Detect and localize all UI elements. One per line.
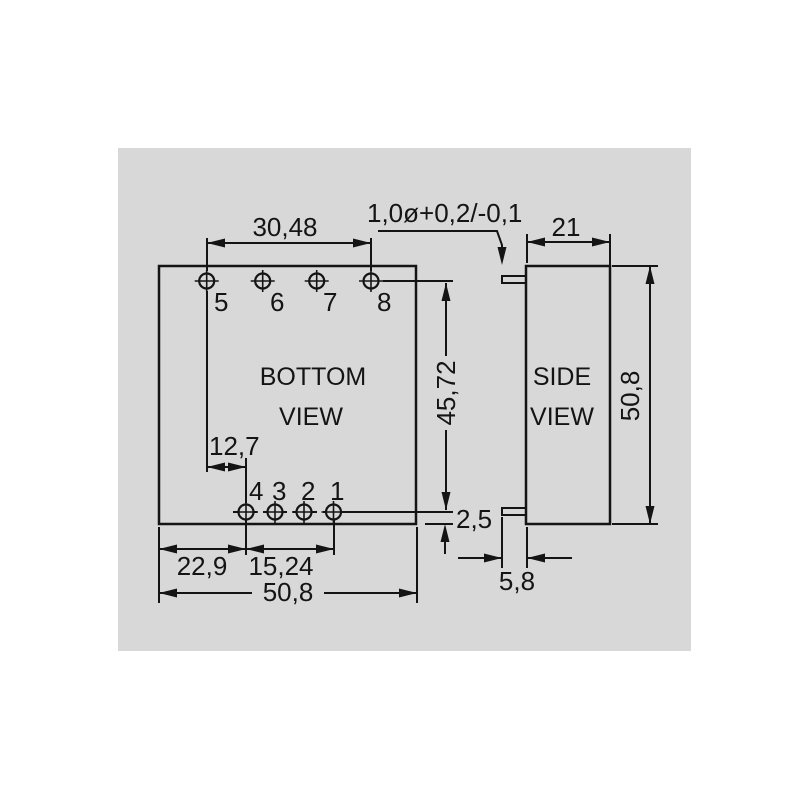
- pin-label-6: 6: [270, 287, 284, 317]
- pin-label-7: 7: [323, 287, 337, 317]
- dim-edge-to-pin4: 22,9: [177, 551, 228, 581]
- pin-label-1: 1: [330, 476, 344, 506]
- pin-label-8: 8: [377, 287, 391, 317]
- dim-side-width: 21: [552, 212, 581, 242]
- dim-body-width: 50,8: [263, 577, 314, 607]
- pin-label-2: 2: [301, 476, 315, 506]
- side-view-title-line1: SIDE: [533, 363, 591, 391]
- dim-pin-diameter: 1,0ø+0,2/-0,1: [367, 198, 522, 228]
- pin-label-5: 5: [214, 287, 228, 317]
- pin-label-4: 4: [249, 476, 263, 506]
- dim-pin-protrusion: 5,8: [499, 566, 535, 596]
- bottom-view-title-line2: VIEW: [279, 403, 343, 431]
- dim-pin-offset: 12,7: [209, 431, 260, 461]
- dim-pin-span-top: 30,48: [252, 212, 317, 242]
- technical-drawing-page: 30,48 1,0ø+0,2/-0,1 21 45,72 2,5 50,8 12…: [0, 0, 800, 800]
- dim-pin-row-to-edge: 2,5: [456, 504, 492, 534]
- dim-side-height: 50,8: [615, 371, 645, 422]
- dim-pin-rows-gap: 45,72: [431, 360, 461, 425]
- side-view-title-line2: VIEW: [530, 403, 594, 431]
- drawing-canvas: 30,48 1,0ø+0,2/-0,1 21 45,72 2,5 50,8 12…: [0, 0, 800, 800]
- bottom-view-title-line1: BOTTOM: [260, 363, 366, 391]
- pin-label-3: 3: [272, 476, 286, 506]
